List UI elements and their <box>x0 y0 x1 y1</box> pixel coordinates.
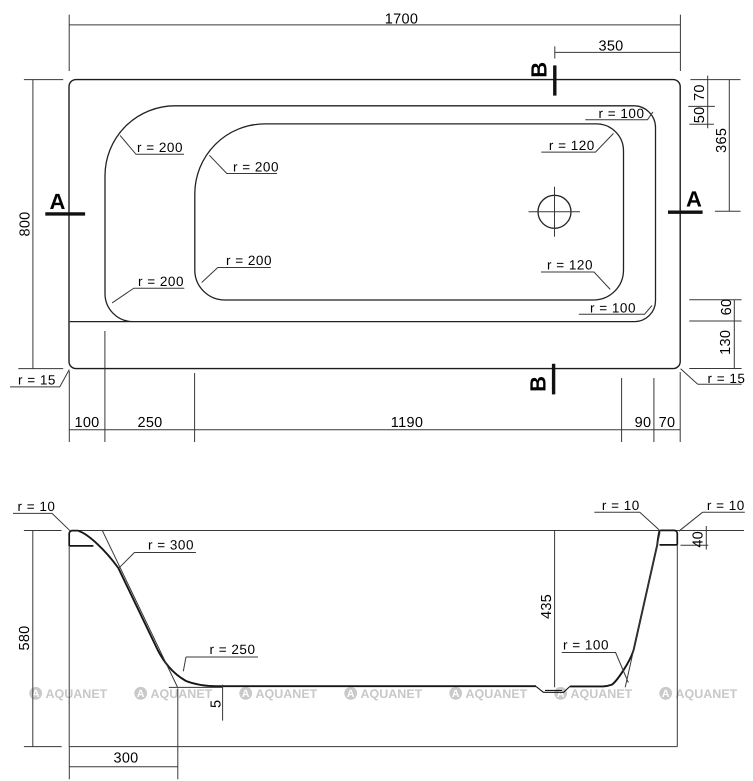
svg-text:580: 580 <box>17 625 33 650</box>
svg-text:B: B <box>526 376 551 392</box>
svg-text:r = 120: r = 120 <box>549 138 595 153</box>
svg-text:AQUANET: AQUANET <box>256 687 318 701</box>
svg-text:1700: 1700 <box>385 12 418 28</box>
svg-text:r = 200: r = 200 <box>138 274 184 289</box>
svg-text:AQUANET: AQUANET <box>151 687 213 701</box>
svg-text:r = 200: r = 200 <box>233 159 279 174</box>
svg-text:5: 5 <box>209 700 225 708</box>
svg-text:250: 250 <box>137 415 162 431</box>
svg-text:435: 435 <box>539 594 555 619</box>
svg-text:r = 10: r = 10 <box>602 498 640 513</box>
svg-text:AQUANET: AQUANET <box>361 687 423 701</box>
svg-text:40: 40 <box>690 531 706 548</box>
svg-text:90: 90 <box>635 415 652 431</box>
svg-text:A: A <box>50 189 66 214</box>
svg-text:AQUANET: AQUANET <box>46 687 108 701</box>
svg-text:A: A <box>137 688 145 700</box>
svg-text:A: A <box>662 688 670 700</box>
svg-text:300: 300 <box>113 750 138 766</box>
svg-text:1190: 1190 <box>391 415 423 431</box>
svg-text:r = 10: r = 10 <box>707 498 745 513</box>
svg-text:70: 70 <box>692 84 708 101</box>
svg-text:r = 15: r = 15 <box>18 373 56 388</box>
svg-text:365: 365 <box>714 128 730 153</box>
svg-text:A: A <box>242 688 250 700</box>
svg-text:100: 100 <box>74 415 99 431</box>
svg-text:AQUANET: AQUANET <box>676 687 738 701</box>
svg-text:r = 200: r = 200 <box>226 253 272 268</box>
svg-text:A: A <box>686 187 702 212</box>
svg-text:A: A <box>452 688 460 700</box>
svg-text:r = 120: r = 120 <box>547 258 593 273</box>
svg-text:B: B <box>527 62 552 78</box>
svg-text:r = 15: r = 15 <box>708 371 746 386</box>
svg-text:AQUANET: AQUANET <box>466 687 528 701</box>
svg-text:130: 130 <box>718 330 734 355</box>
svg-text:r = 100: r = 100 <box>590 300 636 315</box>
svg-text:r = 300: r = 300 <box>148 538 194 553</box>
svg-text:50: 50 <box>692 107 708 124</box>
svg-text:r = 250: r = 250 <box>210 642 256 657</box>
svg-text:AQUANET: AQUANET <box>571 687 633 701</box>
svg-text:r = 200: r = 200 <box>137 140 183 155</box>
svg-text:350: 350 <box>598 39 623 55</box>
svg-text:r = 100: r = 100 <box>563 638 609 653</box>
svg-text:70: 70 <box>659 415 676 431</box>
svg-text:800: 800 <box>18 211 34 236</box>
svg-text:r = 100: r = 100 <box>599 106 645 121</box>
svg-text:A: A <box>347 688 355 700</box>
svg-text:r = 10: r = 10 <box>18 499 56 514</box>
svg-text:60: 60 <box>719 299 735 316</box>
